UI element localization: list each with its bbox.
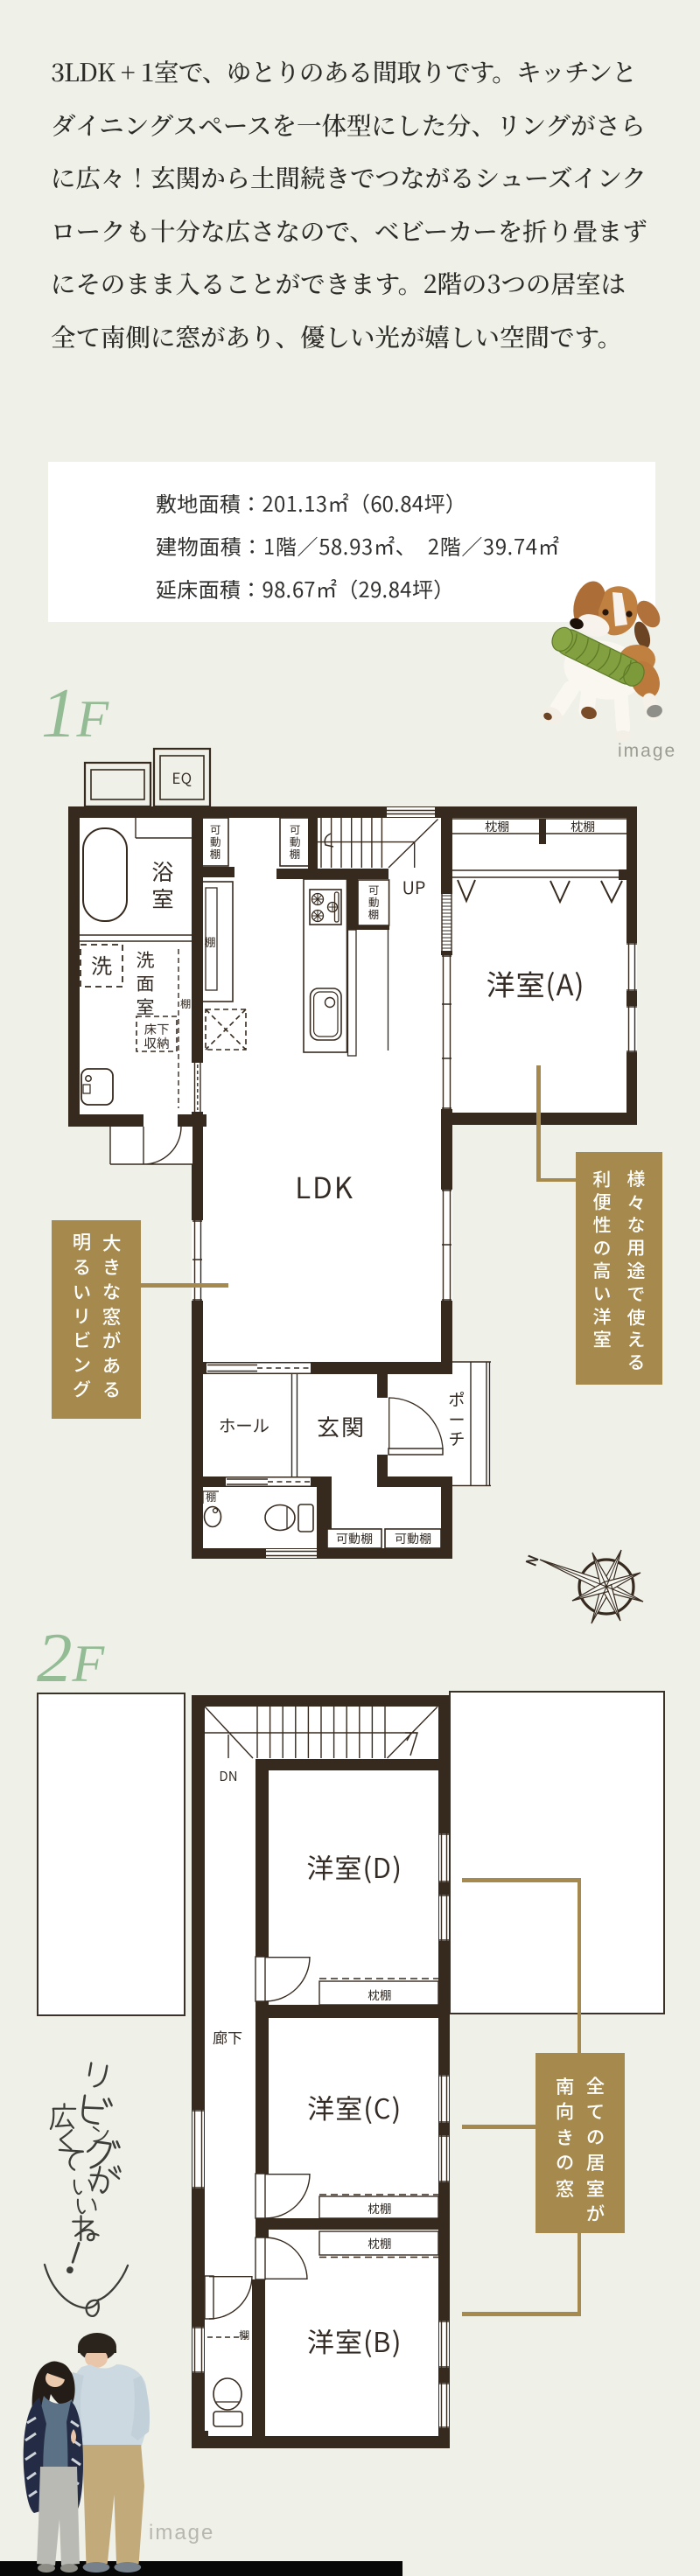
- svg-text:UP: UP: [402, 874, 425, 899]
- svg-text:洗: 洗: [136, 946, 155, 973]
- svg-text:棚: 棚: [206, 1490, 216, 1504]
- svg-text:DN: DN: [219, 1767, 237, 1785]
- svg-text:N: N: [520, 1552, 543, 1569]
- svg-text:室: 室: [136, 994, 155, 1020]
- svg-text:枕棚: 枕棚: [368, 2234, 392, 2251]
- svg-text:棚: 棚: [239, 2328, 249, 2342]
- svg-text:ホール: ホール: [219, 1412, 270, 1437]
- svg-text:廊下: 廊下: [213, 2026, 242, 2048]
- svg-text:枕棚: 枕棚: [368, 1986, 392, 2003]
- svg-text:洗: 洗: [91, 949, 112, 980]
- svg-text:室: 室: [151, 883, 173, 914]
- svg-text:棚: 棚: [204, 933, 215, 950]
- svg-text:EQ: EQ: [172, 766, 192, 788]
- svg-text:可動棚: 可動棚: [336, 1530, 373, 1547]
- svg-text:玄関: 玄関: [317, 1410, 366, 1442]
- svg-text:面: 面: [136, 970, 155, 996]
- svg-text:洋室(C): 洋室(C): [307, 2087, 402, 2126]
- svg-text:枕棚: 枕棚: [368, 2199, 392, 2216]
- svg-text:棚: 棚: [210, 845, 221, 862]
- svg-text:可動棚: 可動棚: [395, 1530, 431, 1547]
- svg-text:棚: 棚: [180, 996, 191, 1011]
- svg-text:棚: 棚: [368, 905, 380, 922]
- svg-text:枕棚: 枕棚: [570, 818, 595, 835]
- svg-text:洋室(B): 洋室(B): [307, 2321, 402, 2360]
- svg-text:チ: チ: [448, 1427, 465, 1450]
- svg-text:枕棚: 枕棚: [485, 818, 509, 835]
- svg-text:収納: 収納: [144, 1034, 170, 1052]
- svg-text:洋室(D): 洋室(D): [306, 1846, 402, 1886]
- svg-text:棚: 棚: [290, 845, 301, 862]
- svg-text:LDK: LDK: [295, 1165, 354, 1207]
- svg-text:洋室(A): 洋室(A): [486, 962, 584, 1004]
